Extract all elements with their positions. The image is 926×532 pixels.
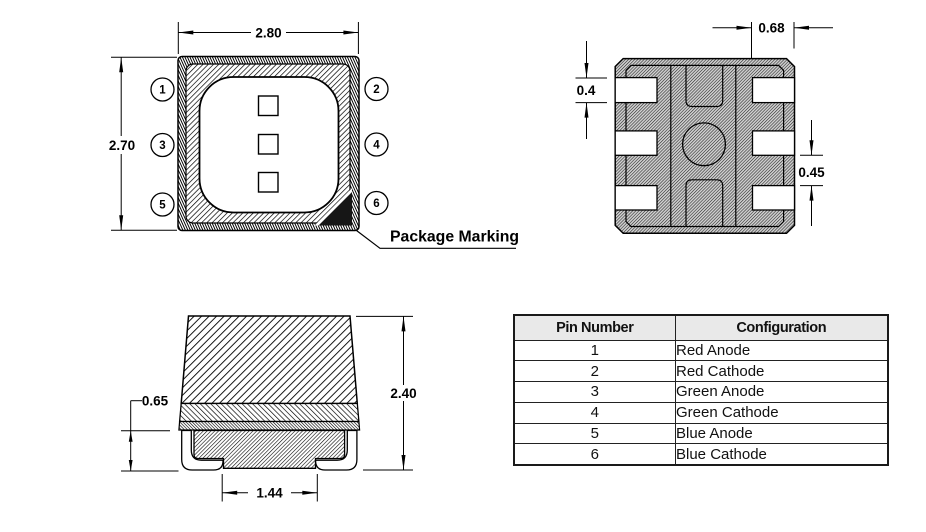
svg-text:0.45: 0.45: [798, 165, 825, 180]
svg-text:2.40: 2.40: [390, 386, 416, 401]
svg-text:0.65: 0.65: [142, 394, 169, 409]
svg-text:4: 4: [373, 140, 380, 152]
svg-text:5: 5: [159, 200, 166, 212]
svg-text:2.70: 2.70: [109, 138, 135, 153]
svg-text:2: 2: [373, 84, 379, 96]
svg-text:6: 6: [373, 198, 379, 210]
svg-text:2.80: 2.80: [255, 25, 281, 40]
svg-text:0.68: 0.68: [758, 21, 785, 36]
svg-text:1.44: 1.44: [256, 486, 283, 501]
svg-text:3: 3: [159, 140, 165, 152]
svg-text:0.4: 0.4: [577, 83, 596, 98]
svg-text:Package Marking: Package Marking: [390, 229, 519, 246]
svg-text:1: 1: [159, 85, 166, 97]
